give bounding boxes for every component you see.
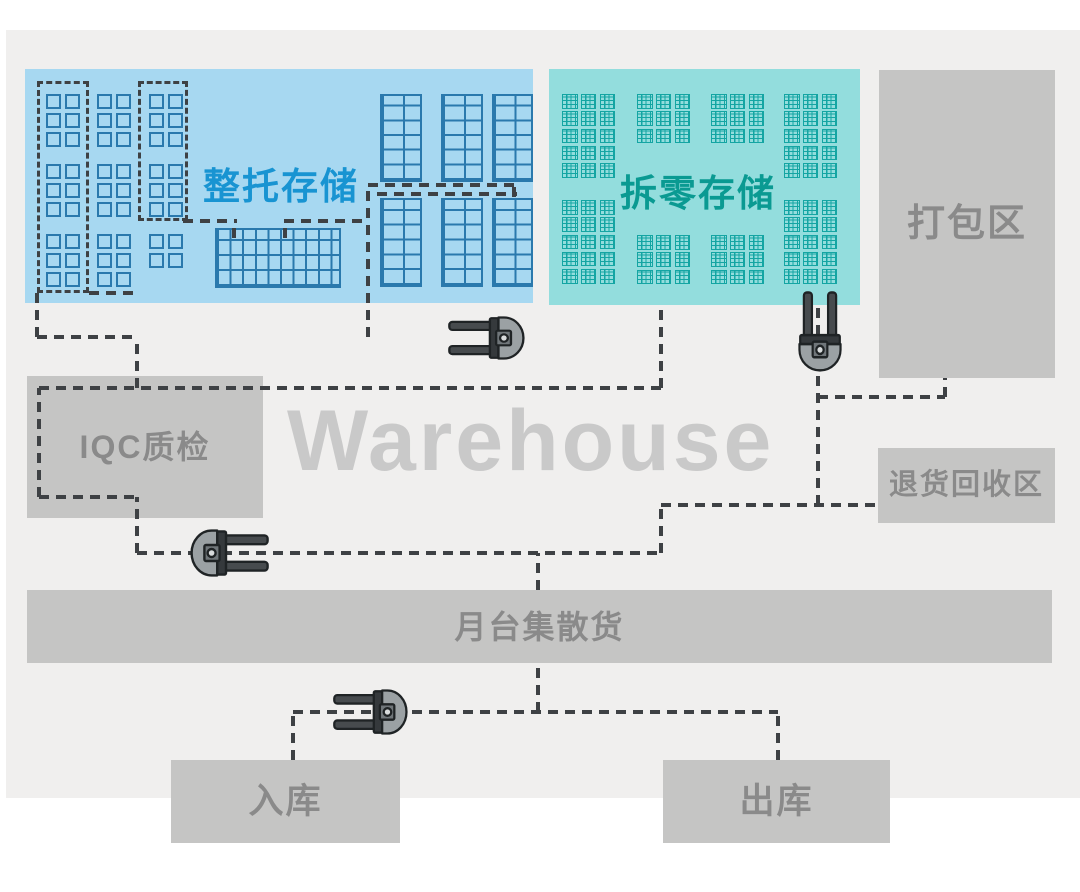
shelf-unit [600, 235, 616, 250]
flow-path [37, 388, 41, 497]
shelf-unit [711, 252, 727, 267]
pallet-cell [149, 234, 164, 249]
flow-path [536, 663, 540, 712]
shelf-unit [803, 94, 819, 109]
shelf-unit [711, 129, 727, 144]
flow-path [135, 497, 139, 553]
shelf-unit [784, 252, 800, 267]
pallet-cell [168, 234, 183, 249]
shelf-unit [562, 163, 578, 178]
shelf-unit [784, 200, 800, 215]
shelf-unit [749, 252, 765, 267]
rack-grid [492, 198, 533, 287]
pallet-cell [116, 94, 131, 109]
shelf-unit [730, 129, 746, 144]
shelf-unit [822, 94, 838, 109]
flow-boundary [138, 81, 188, 221]
shelf-unit [600, 200, 616, 215]
shelf-unit [581, 235, 597, 250]
flow-path [661, 503, 878, 507]
flow-path [943, 378, 947, 397]
zone-returns-recycling: 退货回收区 [878, 448, 1055, 523]
shelf-unit [784, 146, 800, 161]
shelf-unit [656, 252, 672, 267]
shelf-unit [749, 111, 765, 126]
zone-broken-case-label: 拆零存储 [598, 175, 798, 212]
rack-grid [441, 94, 483, 182]
shelf-unit [562, 235, 578, 250]
shelf-unit [730, 111, 746, 126]
shelf-unit [803, 217, 819, 232]
rack-grid [441, 198, 483, 287]
shelf-unit [637, 94, 653, 109]
zone-outbound-label: 出库 [739, 784, 813, 819]
flow-path [283, 221, 287, 238]
shelf-unit [581, 129, 597, 144]
flow-path [35, 293, 39, 337]
shelf-unit [656, 94, 672, 109]
shelf-unit [803, 235, 819, 250]
pallet-cell [149, 253, 164, 268]
shelf-unit [822, 269, 838, 284]
shelf-unit [581, 200, 597, 215]
shelf-unit [637, 252, 653, 267]
shelf-unit [656, 111, 672, 126]
flow-path [284, 219, 368, 223]
warehouse-layout-diagram: 打包区 IQC质检 退货回收区 月台集散货 入库 出库 Warehouse 整托… [0, 0, 1080, 892]
flow-path [776, 712, 780, 760]
flow-path [291, 712, 295, 760]
flow-path [232, 221, 236, 238]
shelf-unit [711, 235, 727, 250]
shelf-unit [562, 94, 578, 109]
flow-path [536, 553, 540, 590]
shelf-unit [581, 217, 597, 232]
shelf-unit [675, 270, 691, 285]
shelf-unit [581, 146, 597, 161]
flow-path [293, 710, 778, 714]
zone-inbound: 入库 [171, 760, 400, 843]
pallet-cell [116, 253, 131, 268]
shelf-unit [581, 94, 597, 109]
flow-path [659, 505, 663, 553]
shelf-unit [749, 270, 765, 285]
shelf-unit [784, 111, 800, 126]
shelf-unit [581, 269, 597, 284]
flow-path [659, 305, 663, 388]
shelf-unit [675, 235, 691, 250]
shelf-unit [784, 235, 800, 250]
rack-grid [380, 198, 422, 287]
shelf-unit [600, 163, 616, 178]
flow-path [135, 337, 139, 388]
shelf-unit [822, 146, 838, 161]
zone-dock-label: 月台集散货 [454, 611, 624, 643]
pallet-cell [168, 253, 183, 268]
zone-outbound: 出库 [663, 760, 890, 843]
shelf-unit [730, 94, 746, 109]
shelf-unit [600, 269, 616, 284]
pallet-cell [97, 113, 112, 128]
shelf-unit [711, 270, 727, 285]
zone-iqc-label: IQC质检 [80, 431, 211, 463]
flow-path [368, 183, 517, 187]
flow-path [183, 219, 237, 223]
shelf-unit [637, 111, 653, 126]
shelf-unit [637, 270, 653, 285]
shelf-unit [600, 94, 616, 109]
shelf-unit [581, 163, 597, 178]
shelf-unit [784, 129, 800, 144]
flow-path [137, 551, 661, 555]
rack-grid [380, 94, 422, 182]
flow-path [89, 291, 138, 295]
zone-packing: 打包区 [879, 70, 1055, 378]
shelf-unit [803, 111, 819, 126]
shelf-unit [562, 252, 578, 267]
pallet-cell [116, 272, 131, 287]
shelf-unit [675, 94, 691, 109]
pallet-cell [116, 202, 131, 217]
flow-boundary [37, 81, 89, 293]
shelf-unit [600, 252, 616, 267]
zone-full-pallet-label: 整托存储 [181, 168, 381, 205]
shelf-unit [675, 252, 691, 267]
shelf-unit [562, 146, 578, 161]
shelf-unit [581, 111, 597, 126]
shelf-unit [656, 270, 672, 285]
shelf-unit [803, 252, 819, 267]
shelf-unit [562, 217, 578, 232]
shelf-unit [656, 235, 672, 250]
warehouse-watermark: Warehouse [287, 398, 787, 484]
pallet-cell [97, 183, 112, 198]
pallet-cell [97, 164, 112, 179]
pallet-cell [116, 113, 131, 128]
shelf-unit [822, 163, 838, 178]
shelf-unit [730, 252, 746, 267]
shelf-unit [822, 252, 838, 267]
shelf-unit [803, 269, 819, 284]
shelf-unit [803, 129, 819, 144]
pallet-cell [97, 272, 112, 287]
shelf-unit [562, 111, 578, 126]
pallet-cell [97, 94, 112, 109]
zone-dock-staging: 月台集散货 [27, 590, 1052, 663]
shelf-unit [822, 235, 838, 250]
pallet-cell [97, 202, 112, 217]
shelf-unit [784, 163, 800, 178]
rack-grid [492, 94, 533, 182]
flow-path [512, 185, 516, 197]
shelf-unit [803, 146, 819, 161]
shelf-unit [562, 269, 578, 284]
flow-path [39, 386, 661, 390]
shelf-unit [637, 129, 653, 144]
shelf-unit [581, 252, 597, 267]
shelf-unit [822, 129, 838, 144]
pallet-cell [97, 253, 112, 268]
zone-returns-label: 退货回收区 [889, 471, 1044, 500]
shelf-unit [803, 163, 819, 178]
shelf-unit [600, 111, 616, 126]
flow-path [39, 495, 139, 499]
pallet-cell [116, 132, 131, 147]
shelf-unit [822, 111, 838, 126]
shelf-unit [784, 94, 800, 109]
shelf-unit [749, 235, 765, 250]
shelf-unit [784, 269, 800, 284]
zone-inbound-label: 入库 [248, 784, 322, 819]
pallet-cell [116, 164, 131, 179]
shelf-unit [656, 129, 672, 144]
shelf-unit [675, 111, 691, 126]
shelf-unit [562, 200, 578, 215]
flow-path [366, 185, 370, 337]
pallet-cell [97, 132, 112, 147]
flow-path [816, 303, 820, 505]
shelf-unit [749, 129, 765, 144]
shelf-unit [803, 200, 819, 215]
pallet-cell [116, 183, 131, 198]
shelf-unit [711, 94, 727, 109]
flow-path [377, 192, 517, 196]
pallet-cell [116, 234, 131, 249]
shelf-unit [600, 129, 616, 144]
shelf-unit [749, 94, 765, 109]
flow-path [818, 395, 945, 399]
shelf-unit [822, 217, 838, 232]
shelf-unit [637, 235, 653, 250]
shelf-unit [730, 235, 746, 250]
shelf-unit [675, 129, 691, 144]
shelf-unit [711, 111, 727, 126]
flow-path [37, 335, 139, 339]
shelf-unit [730, 270, 746, 285]
shelf-unit [600, 217, 616, 232]
zone-packing-label: 打包区 [907, 205, 1027, 243]
shelf-unit [822, 200, 838, 215]
shelf-unit [784, 217, 800, 232]
pallet-cell [97, 234, 112, 249]
shelf-unit [600, 146, 616, 161]
shelf-unit [562, 129, 578, 144]
